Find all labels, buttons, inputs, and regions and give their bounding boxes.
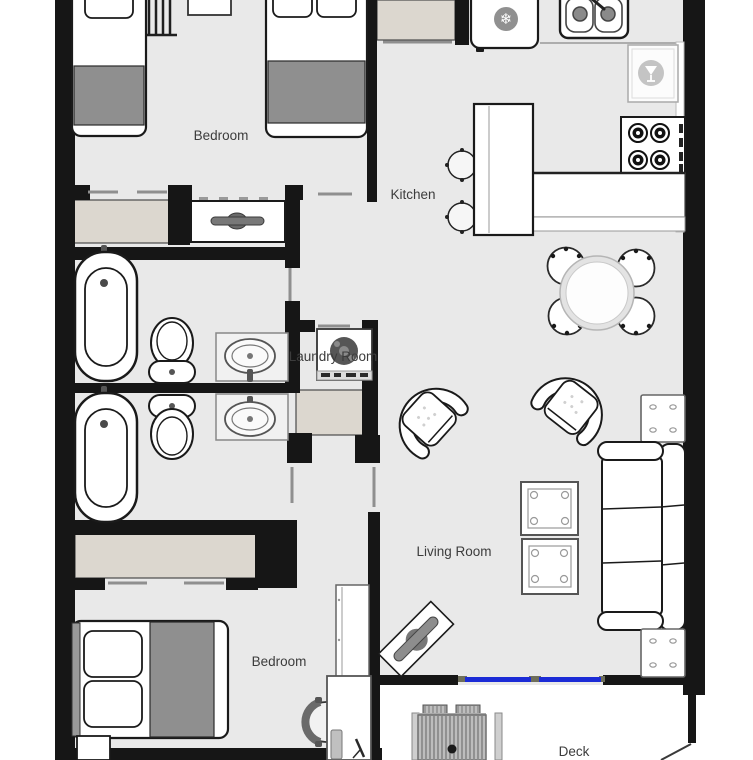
kitchen-counter-bottom bbox=[533, 173, 685, 231]
label-kitchen: Kitchen bbox=[390, 187, 435, 202]
stove bbox=[621, 117, 685, 175]
laptop bbox=[331, 730, 342, 759]
bathtub-1 bbox=[75, 245, 137, 381]
dishwasher bbox=[628, 45, 678, 102]
drain bbox=[100, 279, 108, 287]
blanket bbox=[268, 61, 365, 123]
coffee-table bbox=[521, 482, 578, 535]
bedroom-bottom-closet bbox=[75, 533, 260, 578]
blanket bbox=[74, 66, 144, 125]
label-deck: Deck bbox=[559, 744, 590, 759]
wall-segment bbox=[55, 578, 105, 590]
wall-segment bbox=[455, 0, 469, 45]
bedroom-top-closet bbox=[57, 200, 180, 243]
wall-bathroom-divider bbox=[55, 383, 300, 393]
bed-double-right bbox=[266, 0, 367, 137]
umbrella-hole bbox=[448, 745, 457, 754]
pillow bbox=[84, 631, 142, 677]
refrigerator: ❄ bbox=[471, 0, 538, 52]
desk bbox=[327, 676, 371, 760]
wall-segment bbox=[380, 675, 458, 685]
pillow bbox=[273, 0, 312, 17]
label-bedroom-top: Bedroom bbox=[194, 128, 249, 143]
bed-twin-left bbox=[72, 0, 146, 136]
pillow bbox=[85, 0, 133, 18]
floorplan-canvas: ❄ bbox=[0, 0, 753, 760]
pillow bbox=[317, 0, 356, 17]
wall-segment bbox=[226, 578, 258, 590]
drain bbox=[573, 7, 587, 21]
bed-double-bottom bbox=[72, 621, 228, 738]
coffee-table bbox=[522, 539, 578, 594]
wall-segment bbox=[367, 0, 377, 202]
sofa-armrest bbox=[598, 442, 663, 460]
wardrobe bbox=[336, 585, 369, 678]
pillow bbox=[84, 681, 142, 727]
wall-segment bbox=[255, 520, 297, 588]
deck-rail bbox=[688, 695, 696, 743]
nightstand-top bbox=[188, 0, 231, 15]
window-glass bbox=[465, 677, 531, 682]
snowflake-glyph: ❄ bbox=[500, 10, 513, 28]
wall-segment bbox=[168, 200, 190, 245]
vanity-sink-2 bbox=[216, 394, 288, 440]
nightstand-bottom bbox=[77, 736, 110, 760]
faucet bbox=[247, 369, 253, 382]
bathtub-2 bbox=[75, 386, 137, 522]
drain bbox=[100, 420, 108, 428]
headboard bbox=[72, 623, 80, 736]
blanket bbox=[150, 622, 214, 737]
sofa bbox=[598, 442, 685, 630]
wall-segment bbox=[168, 185, 192, 200]
toilet-1 bbox=[149, 318, 195, 383]
end-table bbox=[641, 395, 685, 442]
wall-segment bbox=[355, 435, 380, 463]
wall-segment bbox=[287, 433, 312, 463]
label-living-room: Living Room bbox=[416, 544, 491, 559]
kitchen-sink bbox=[560, 0, 628, 38]
hall-closet bbox=[296, 390, 368, 435]
entry-closet bbox=[377, 0, 455, 40]
sofa-armrest bbox=[598, 612, 663, 630]
label-bedroom-bottom: Bedroom bbox=[252, 654, 307, 669]
end-table bbox=[641, 629, 685, 677]
dresser bbox=[191, 197, 285, 242]
window-glass bbox=[539, 677, 601, 682]
wall-right-exterior bbox=[683, 0, 705, 695]
wall-segment bbox=[55, 185, 90, 200]
wall-segment bbox=[55, 520, 255, 535]
kitchen-island bbox=[474, 104, 533, 235]
toilet-2 bbox=[149, 395, 195, 459]
floorplan-image: ❄ bbox=[0, 0, 753, 760]
label-laundry: Laundry Room bbox=[289, 349, 378, 364]
vanity-sink-1 bbox=[216, 333, 288, 382]
wall-segment bbox=[285, 320, 315, 332]
